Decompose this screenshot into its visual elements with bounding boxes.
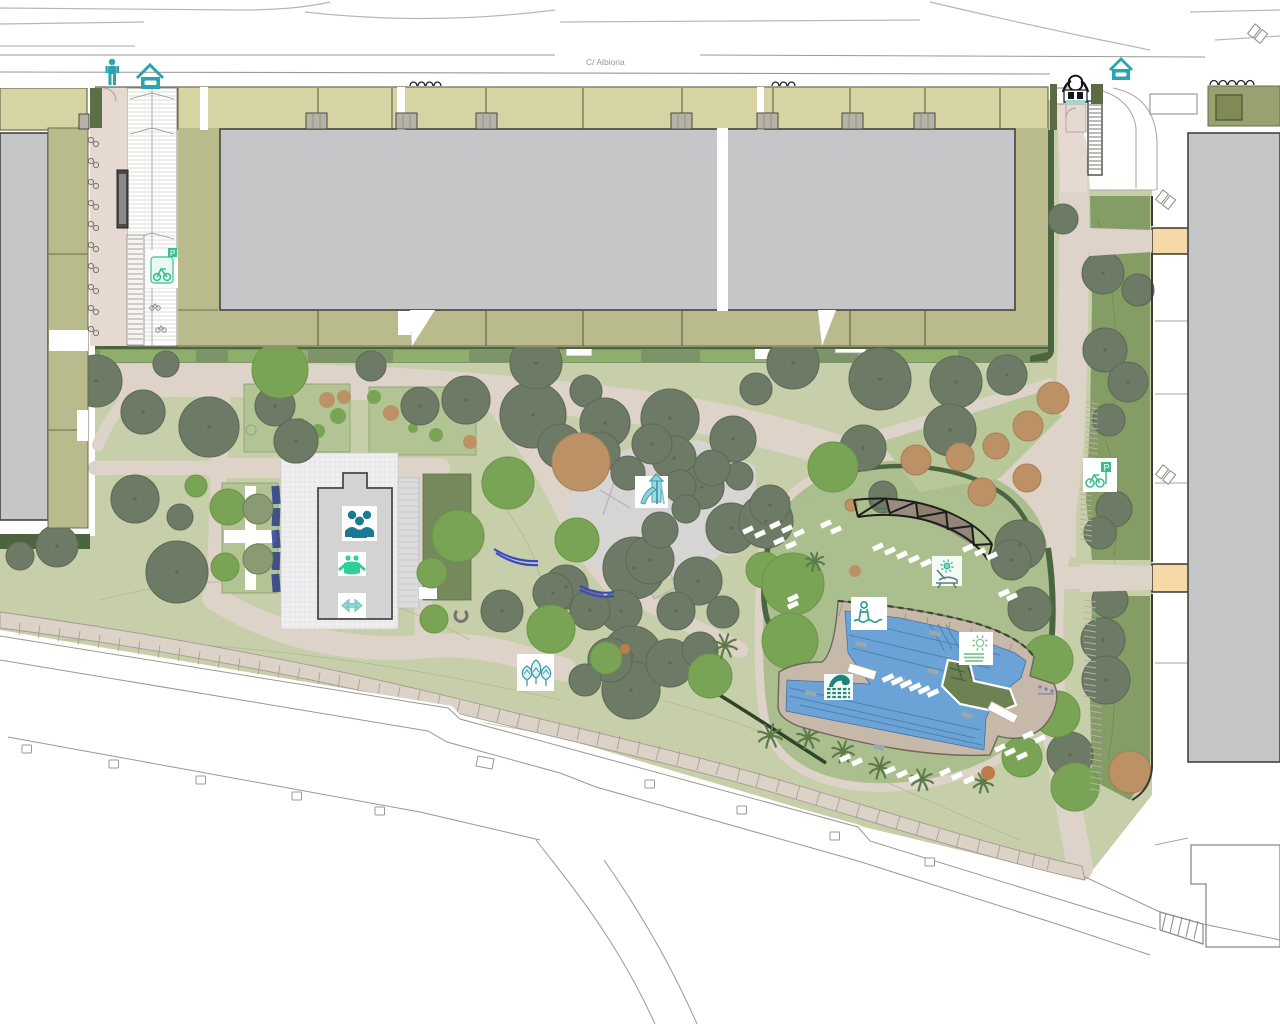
svg-text:P: P	[1104, 463, 1110, 473]
svg-text:P: P	[170, 249, 175, 258]
svg-text:C/ Albioria: C/ Albioria	[586, 57, 625, 67]
